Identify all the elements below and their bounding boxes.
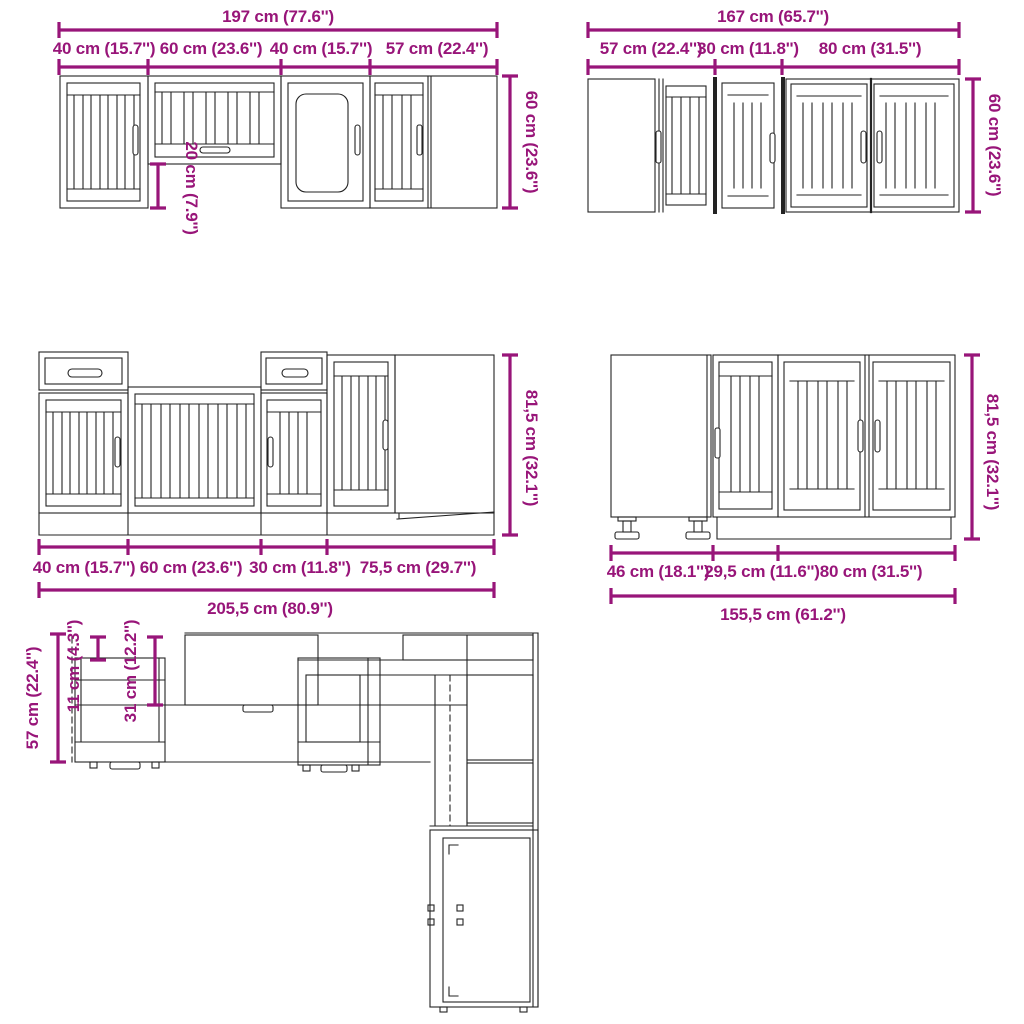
dim-segment-label: 80 cm (31.5'') xyxy=(819,39,922,58)
door-handle xyxy=(861,131,866,163)
dim-segment-label: 60 cm (23.6'') xyxy=(160,39,263,58)
corner-layout-plan-drawing xyxy=(72,633,538,1012)
adjustable-foot xyxy=(686,532,710,539)
dim-segment-label: 80 cm (31.5'') xyxy=(820,562,923,581)
door-handle xyxy=(417,125,422,155)
door-handle xyxy=(383,420,388,450)
base-cabinet-set-a-drawing xyxy=(39,352,494,535)
dim-segment-label: 60 cm (23.6'') xyxy=(140,558,243,577)
door-handle xyxy=(656,131,661,163)
door-handle xyxy=(875,420,880,452)
drawer-handle xyxy=(200,147,230,153)
drawer-recess-handle xyxy=(110,762,140,769)
door-handle xyxy=(268,437,273,467)
glass-door-panel xyxy=(296,94,348,192)
dim-segment-label: 75,5 cm (29.7'') xyxy=(360,558,476,577)
dim-depth-label: 57 cm (22.4'') xyxy=(23,647,42,750)
door-handle xyxy=(877,131,882,163)
door-handle xyxy=(115,437,120,467)
dim-height-label: 81,5 cm (32.1'') xyxy=(522,390,541,506)
door-handle xyxy=(355,125,360,155)
dim-segment-label: 57 cm (22.4'') xyxy=(600,39,703,58)
wall-cabinet-set-b-drawing xyxy=(588,79,959,212)
dim-segment-label: 40 cm (15.7'') xyxy=(33,558,136,577)
dim-total-width-label: 167 cm (65.7'') xyxy=(717,7,829,26)
corner-layout-plan-dimensions: 57 cm (22.4'') 11 cm (4.3'') 31 cm (12.2… xyxy=(23,620,163,762)
base-cabinet-set-a-dimensions: 40 cm (15.7'') 60 cm (23.6'') 30 cm (11.… xyxy=(33,355,541,618)
dim-segment-label: 57 cm (22.4'') xyxy=(386,39,489,58)
door-handle xyxy=(715,428,720,458)
dim-segment-label: 30 cm (11.8'') xyxy=(697,39,799,58)
dim-segment-label: 29,5 cm (11.6'') xyxy=(704,562,819,581)
wall-cabinet-set-b-dimensions: 167 cm (65.7'') 57 cm (22.4'') 30 cm (11… xyxy=(588,7,1004,212)
wall-cabinet-set-a-drawing xyxy=(60,76,497,208)
dim-segment-label: 46 cm (18.1'') xyxy=(607,562,710,581)
dim-height-label: 60 cm (23.6'') xyxy=(985,94,1004,197)
dim-segment-label: 40 cm (15.7'') xyxy=(53,39,156,58)
drawer-handle xyxy=(68,369,102,377)
dim-height-label: 60 cm (23.6'') xyxy=(522,91,541,194)
dim-clearance-mid-label: 31 cm (12.2'') xyxy=(121,620,140,723)
drawer-recess-handle xyxy=(243,705,273,712)
diagram-svg: 197 cm (77.6'') 40 cm (15.7'') 60 cm (23… xyxy=(0,0,1024,1024)
dim-segment-label: 30 cm (11.8'') xyxy=(249,558,351,577)
dim-total-width-label: 155,5 cm (61.2'') xyxy=(720,605,846,624)
drawer-recess-handle xyxy=(321,765,347,772)
door-handle xyxy=(133,125,138,155)
dim-clearance-small-label: 11 cm (4.3'') xyxy=(64,620,83,712)
dim-height-label: 81,5 cm (32.1'') xyxy=(983,394,1002,510)
adjustable-foot xyxy=(615,532,639,539)
dim-segment-label: 40 cm (15.7'') xyxy=(270,39,373,58)
door-handle xyxy=(770,133,775,163)
base-cabinet-set-b-drawing xyxy=(611,355,955,539)
dim-total-width-label: 197 cm (77.6'') xyxy=(222,7,334,26)
dim-total-width-label: 205,5 cm (80.9'') xyxy=(207,599,333,618)
dim-inner-height-label: 20 cm (7.9'') xyxy=(182,141,201,234)
door-handle xyxy=(858,420,863,452)
kitchen-cabinet-dimension-diagram: 197 cm (77.6'') 40 cm (15.7'') 60 cm (23… xyxy=(0,0,1024,1024)
drawer-handle xyxy=(282,369,308,377)
